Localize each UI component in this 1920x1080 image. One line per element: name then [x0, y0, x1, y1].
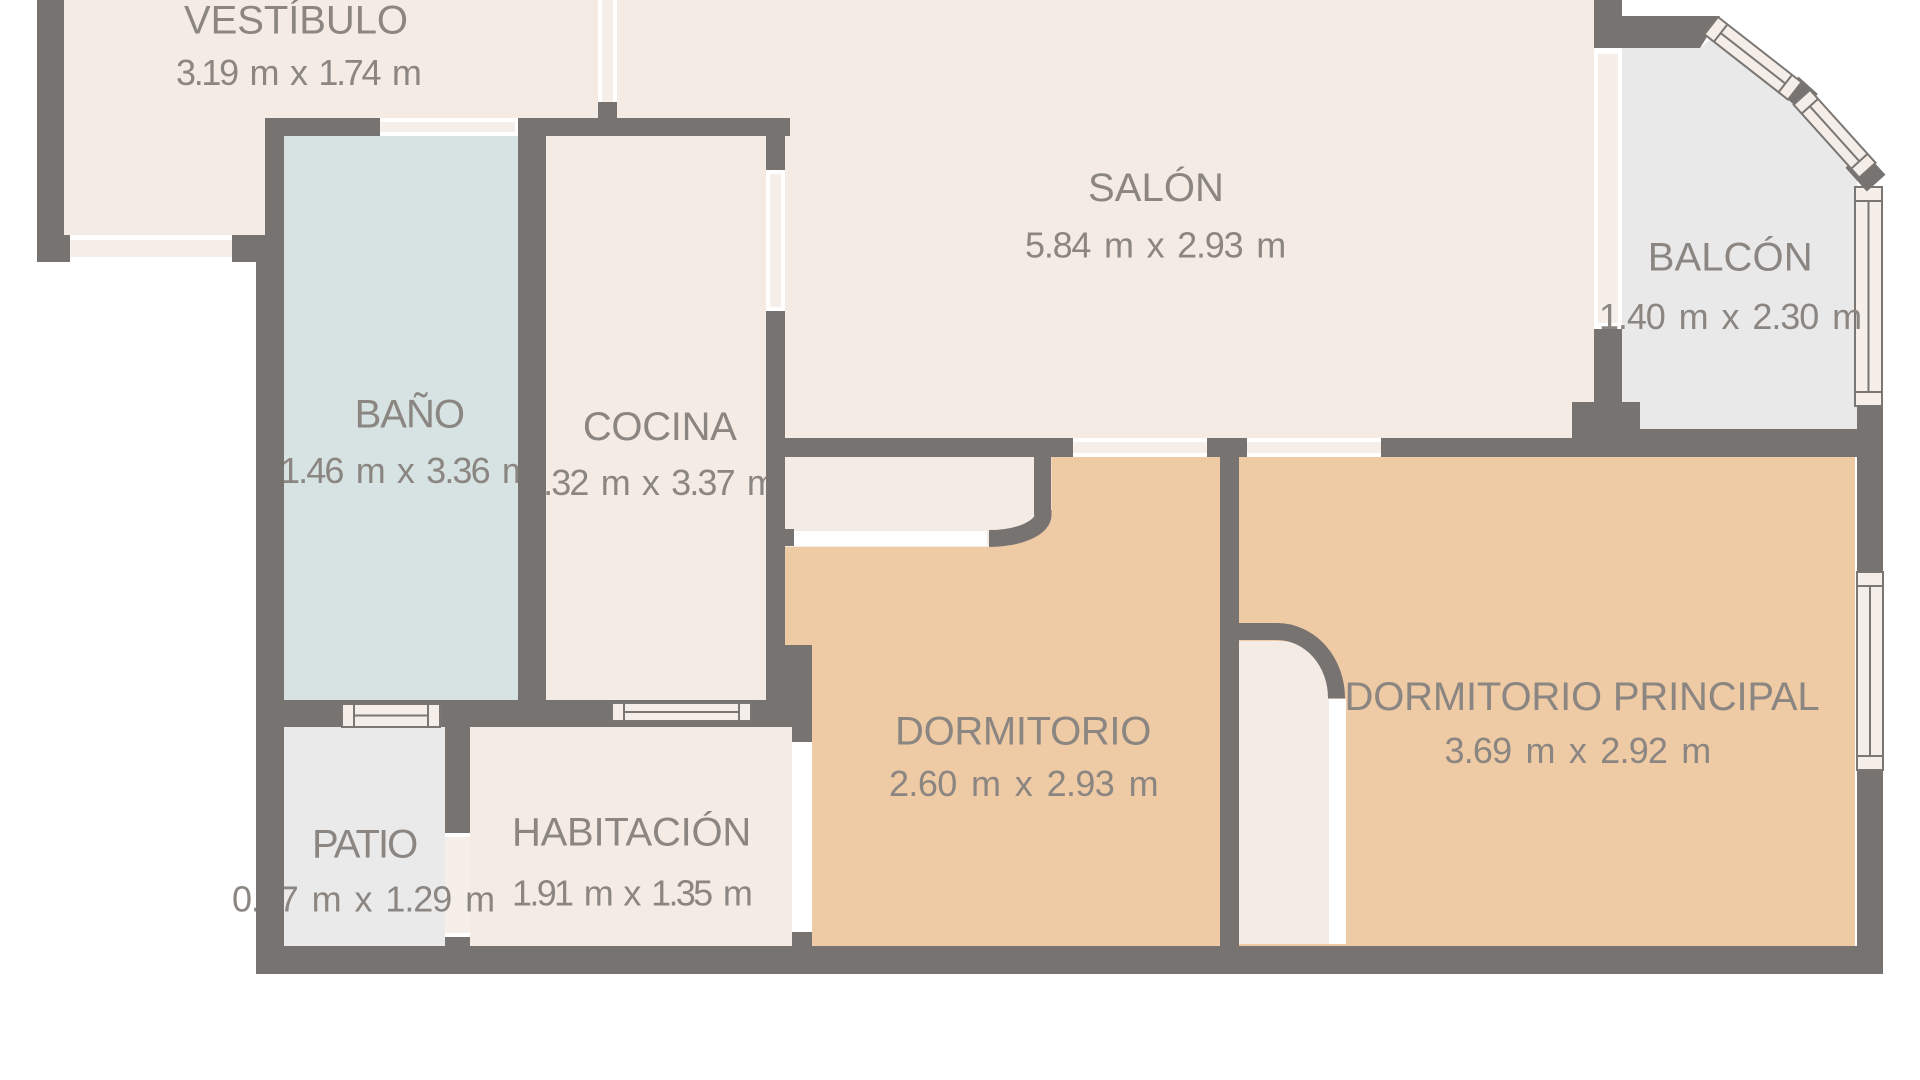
svg-text:SALÓN: SALÓN	[1088, 165, 1224, 210]
svg-text:VESTÍBULO: VESTÍBULO	[184, 0, 408, 43]
svg-text:DORMITORIO PRINCIPAL: DORMITORIO PRINCIPAL	[1345, 675, 1820, 719]
svg-text:1.46 m x 3.36 m: 1.46 m x 3.36 m	[280, 450, 530, 491]
svg-text:3.19 m x 1.74 m: 3.19 m x 1.74 m	[176, 52, 420, 93]
svg-text:BAÑO: BAÑO	[355, 392, 464, 437]
svg-text:DORMITORIO: DORMITORIO	[895, 710, 1151, 754]
svg-text:1.32 m x 3.37 m: 1.32 m x 3.37 m	[525, 462, 775, 503]
svg-text:1.91 m x 1.35 m: 1.91 m x 1.35 m	[512, 873, 751, 914]
svg-text:5.84 m x 2.93 m: 5.84 m x 2.93 m	[1025, 225, 1285, 266]
svg-text:3.69 m x 2.92 m: 3.69 m x 2.92 m	[1445, 730, 1711, 771]
svg-text:1.40 m x 2.30 m: 1.40 m x 2.30 m	[1599, 296, 1861, 337]
svg-text:2.60 m x 2.93 m: 2.60 m x 2.93 m	[889, 763, 1158, 804]
svg-text:BALCÓN: BALCÓN	[1648, 235, 1813, 280]
svg-text:PATIO: PATIO	[312, 823, 417, 867]
svg-text:HABITACIÓN: HABITACIÓN	[512, 810, 751, 855]
svg-text:COCINA: COCINA	[583, 405, 737, 449]
